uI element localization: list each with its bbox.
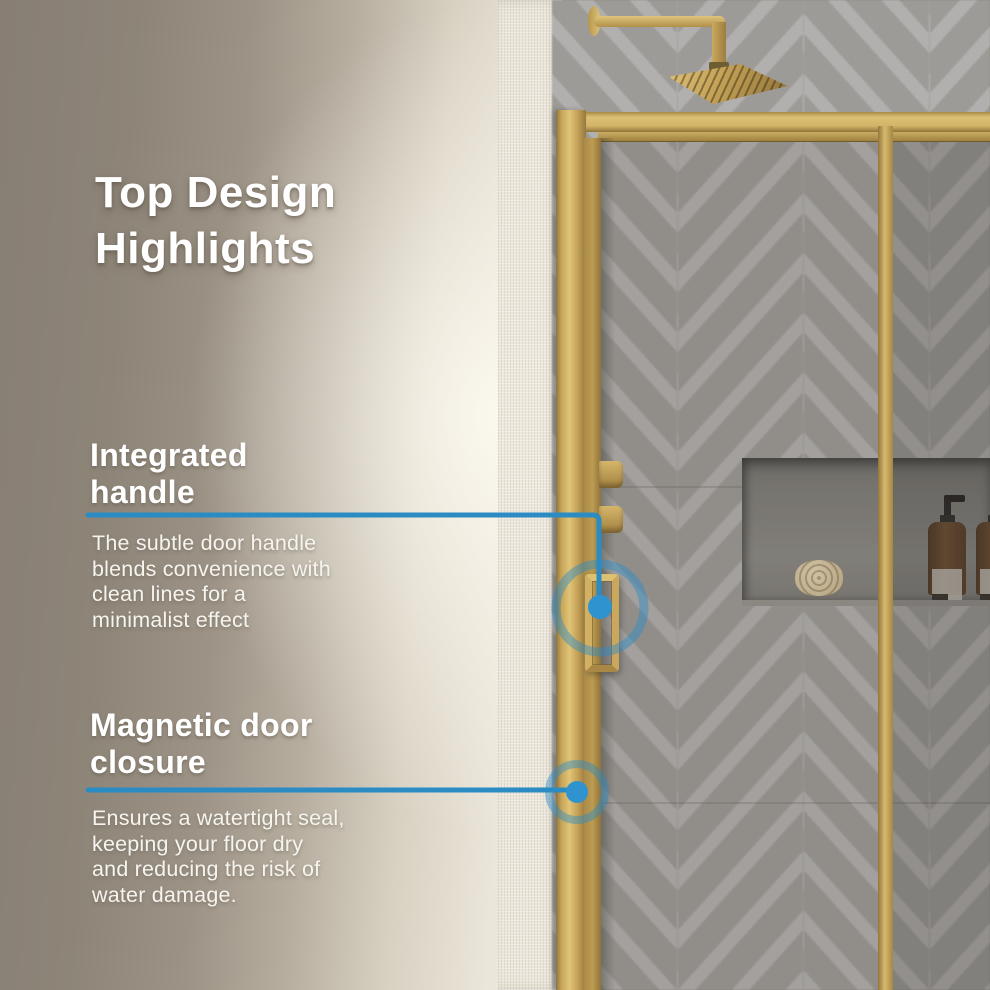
product-infographic: Top Design Highlights Integrated handle … [0,0,990,990]
feature-heading-magnetic-closure: Magnetic door closure [90,707,313,781]
door-frame-middle-stile [878,126,893,990]
glass-panel-overlap-tint [893,137,990,990]
glass-edge-shadow [601,138,615,990]
integrated-door-handle [585,574,619,672]
wall-mount-bracket [599,506,623,533]
door-edge-stile [584,138,601,990]
feature-heading-integrated-handle: Integrated handle [90,437,248,511]
door-frame-left-bar [556,110,586,990]
page-title: Top Design Highlights [95,165,336,277]
shower-arm [594,16,725,27]
wall-mount-bracket [599,461,623,488]
feature-body-magnetic-closure: Ensures a watertight seal, keeping your … [92,806,422,908]
feature-body-integrated-handle: The subtle door handle blends convenienc… [92,531,422,633]
door-frame-top-bar [556,112,990,132]
door-top-rail [598,132,990,142]
